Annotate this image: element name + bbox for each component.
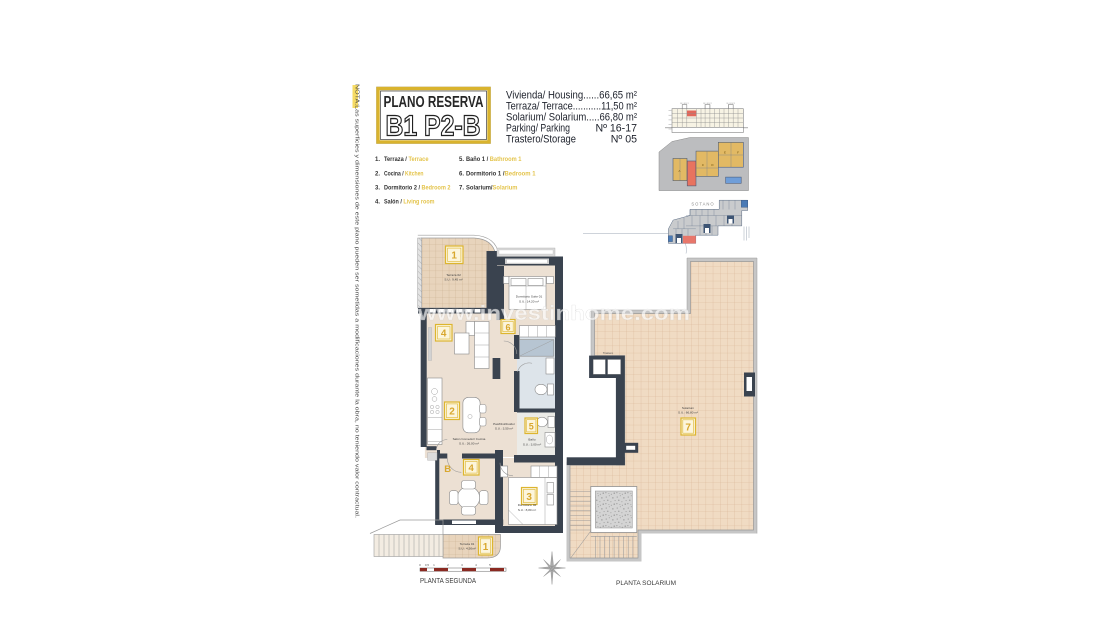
svg-text:4: 4 <box>441 329 447 340</box>
svg-text:SOTANO: SOTANO <box>691 202 714 207</box>
svg-text:www.investinhome.com: www.investinhome.com <box>417 302 690 325</box>
svg-text:PLANTA SEGUNDA: PLANTA SEGUNDA <box>420 576 476 585</box>
svg-text:Solarium/Solarium: Solarium/Solarium <box>466 185 518 191</box>
svg-text:1.: 1. <box>375 157 380 163</box>
svg-text:S.U.: 4,50m²: S.U.: 4,50m² <box>458 547 475 551</box>
svg-text:PLANTA SOLARIUM: PLANTA SOLARIUM <box>616 580 676 587</box>
svg-text:Trastero: Trastero <box>603 351 614 355</box>
svg-text:Cocina / Kitchen: Cocina / Kitchen <box>384 171 424 177</box>
svg-text:3.: 3. <box>375 185 380 191</box>
svg-text:Dormitorio 2 / Bedroom 2: Dormitorio 2 / Bedroom 2 <box>384 185 451 191</box>
svg-text:3: 3 <box>526 492 532 503</box>
svg-text:5: 5 <box>529 422 534 432</box>
svg-text:Dormitorio 1 /Bedroom 1: Dormitorio 1 /Bedroom 1 <box>466 171 536 177</box>
svg-text:NOTA:Las superficies y dimensi: NOTA:Las superficies y dimensiones de es… <box>354 84 360 518</box>
svg-text:Baño: Baño <box>528 438 536 442</box>
svg-text:F: F <box>737 151 739 155</box>
svg-text:S.U.: 9,45 m²: S.U.: 9,45 m² <box>444 278 462 282</box>
svg-text:PLANO RESERVA: PLANO RESERVA <box>384 94 484 111</box>
svg-text:BL1 ESC3: BL1 ESC3 <box>727 103 735 105</box>
svg-text:Pas/Distribuidor: Pas/Distribuidor <box>493 422 515 426</box>
svg-text:Terraza / Terrace: Terraza / Terrace <box>384 157 429 163</box>
svg-text:E: E <box>724 151 726 155</box>
svg-text:4.: 4. <box>375 199 380 205</box>
svg-text:7.: 7. <box>459 185 464 191</box>
svg-text:5: 5 <box>489 563 491 567</box>
svg-text:S.U.: 3,00 m²: S.U.: 3,00 m² <box>523 443 541 447</box>
svg-text:B: B <box>444 464 451 475</box>
svg-text:S.U.: 26,00 m²: S.U.: 26,00 m² <box>459 442 479 446</box>
svg-text:S.U.: 8,80 m²: S.U.: 8,80 m² <box>518 508 536 512</box>
svg-text:Dormitorio 02: Dormitorio 02 <box>518 503 537 507</box>
svg-text:5.: 5. <box>459 157 464 163</box>
svg-text:Trastero/Storage: Trastero/Storage <box>506 134 576 146</box>
svg-text:2: 2 <box>447 563 449 567</box>
svg-text:4: 4 <box>469 463 475 474</box>
svg-text:2.: 2. <box>375 171 380 177</box>
svg-text:Nº 05: Nº 05 <box>611 134 637 146</box>
svg-text:S.U.: 3,50 m²: S.U.: 3,50 m² <box>495 427 513 431</box>
svg-text:6.: 6. <box>459 171 464 177</box>
svg-text:2: 2 <box>449 407 455 418</box>
svg-text:Salón Comedor/ Cocina: Salón Comedor/ Cocina <box>453 437 486 441</box>
svg-text:1: 1 <box>451 251 457 262</box>
svg-text:Dormitorio Suite 01: Dormitorio Suite 01 <box>516 295 543 299</box>
svg-text:1: 1 <box>433 563 435 567</box>
svg-text:0,5: 0,5 <box>425 563 430 567</box>
svg-text:Solarium: Solarium <box>682 406 695 410</box>
svg-text:BL1 ESC1: BL1 ESC1 <box>680 103 688 105</box>
svg-text:3: 3 <box>461 563 463 567</box>
svg-text:Terraza 01: Terraza 01 <box>460 542 475 546</box>
svg-text:4: 4 <box>475 563 477 567</box>
svg-text:B1 P2-B: B1 P2-B <box>386 111 481 143</box>
svg-text:Terraza 02: Terraza 02 <box>446 273 461 277</box>
svg-text:0: 0 <box>419 563 421 567</box>
svg-text:Salón / Living room: Salón / Living room <box>384 199 435 205</box>
svg-text:1: 1 <box>483 542 489 553</box>
svg-text:BL1 ESC2: BL1 ESC2 <box>703 103 711 105</box>
svg-text:7: 7 <box>685 423 691 434</box>
svg-text:Baño 1 / Bathroom 1: Baño 1 / Bathroom 1 <box>466 157 522 163</box>
svg-text:S.U.: 66,80 m²: S.U.: 66,80 m² <box>678 411 698 415</box>
